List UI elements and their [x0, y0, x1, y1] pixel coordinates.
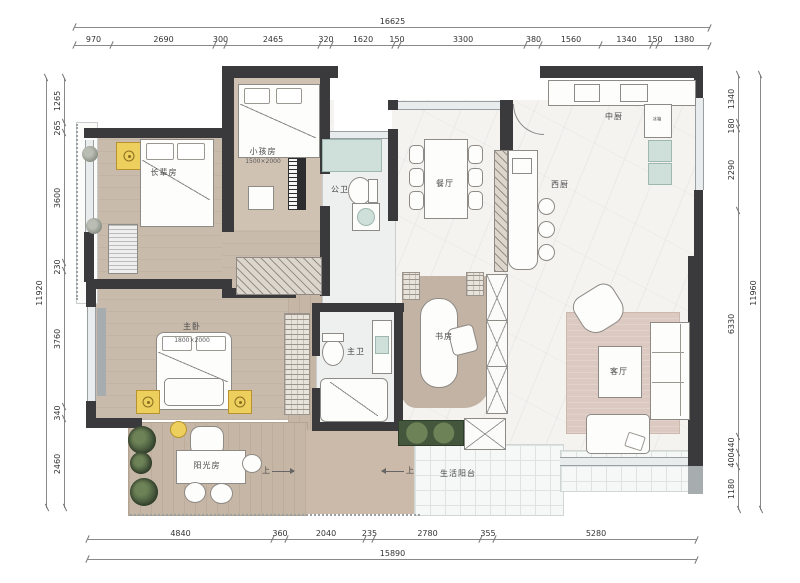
lamp-icon — [124, 151, 135, 162]
island-sink — [512, 158, 532, 174]
dim-text: 11920 — [36, 280, 44, 305]
dim-top-total: 16625 — [75, 16, 710, 28]
dim-text: 2040 — [316, 530, 336, 538]
service-balcony-floor-left — [414, 444, 564, 516]
island-stool-1 — [538, 198, 555, 215]
label-master-bed-size: 1800×2000 — [174, 338, 210, 344]
master-nightstand-right — [228, 390, 252, 414]
dim-bottom-segments: 4840 360 2040 235 2780 355 5280 — [88, 528, 697, 540]
wall-elder-left-lower — [84, 232, 94, 282]
dim-text: 4840 — [170, 530, 190, 538]
kids-wardrobe — [236, 257, 322, 295]
lamp-icon — [235, 397, 246, 408]
sunroom-plant-1 — [128, 426, 156, 454]
bathtub-line — [330, 382, 378, 416]
wall-balcony-right — [688, 466, 703, 494]
elder-pillow-right — [177, 143, 205, 160]
label-living: 客厅 — [610, 368, 628, 376]
dim-top-segments: 970 2690 300 2465 320 1620 150 3300 380 … — [75, 34, 710, 46]
elder-pillow-left — [146, 143, 174, 160]
sunroom-stool-yellow — [170, 421, 187, 438]
sunroom-plant-3 — [130, 478, 158, 506]
left-balcony-railing — [76, 124, 78, 300]
dim-text: 15890 — [380, 550, 405, 558]
wall-kids-top — [222, 66, 338, 78]
sunroom-plant-2 — [130, 452, 152, 474]
dim-text: 16625 — [380, 18, 405, 26]
kids-piano — [288, 158, 306, 210]
island-stool-2 — [538, 221, 555, 238]
label-study: 书房 — [435, 333, 453, 341]
sunroom-side-table — [242, 454, 262, 473]
study-bookcase-3 — [486, 366, 508, 414]
dim-right-segments: 1340 180 2290 6330 440 400 1180 — [726, 75, 739, 510]
dining-chair-r2 — [468, 168, 483, 187]
dim-text: 1340 — [728, 89, 736, 109]
study-cabinet-top-left — [402, 272, 420, 300]
wall-master-bath-left-upper — [312, 312, 320, 356]
up-annotation-right: 上 — [382, 467, 414, 475]
island-stool-3 — [538, 244, 555, 261]
up-arrow-right-icon — [272, 471, 294, 472]
wall-kitchen-top — [540, 66, 702, 78]
dim-text: 1340 — [616, 36, 636, 44]
dining-chair-r3 — [468, 191, 483, 210]
wall-living-right — [688, 256, 703, 466]
sofa-back-line — [680, 324, 681, 416]
floor-plan-canvas: 长辈房 小孩房 1500×2000 公卫 餐厅 中厨 西厨 冰箱 主卧 1800… — [0, 0, 800, 583]
window-living-bottom — [560, 457, 688, 466]
up-arrow-left-icon — [382, 471, 404, 472]
kitchen-stove — [574, 84, 600, 102]
study-cabinet-top-right — [466, 272, 484, 296]
dim-text: 3760 — [54, 329, 62, 349]
dining-chair-l2 — [409, 168, 424, 187]
up-annotation-left: 上 — [262, 467, 294, 475]
living-sofa — [650, 322, 690, 420]
kids-pillow-left — [244, 88, 270, 104]
dim-text: 11960 — [750, 280, 758, 305]
balcony-plant-small-1 — [82, 146, 98, 162]
wall-elder-top — [84, 128, 232, 138]
dim-text: 3300 — [453, 36, 473, 44]
guest-toilet-tank — [368, 179, 378, 203]
up-text-left: 上 — [262, 467, 270, 475]
dim-text: 2465 — [263, 36, 283, 44]
label-dining: 餐厅 — [436, 180, 454, 188]
study-bookcase-1 — [486, 274, 508, 322]
label-chinese-kitchen: 中厨 — [605, 113, 623, 121]
dim-text: 1560 — [561, 36, 581, 44]
dim-text: 1380 — [674, 36, 694, 44]
window-master-left — [87, 307, 96, 401]
dim-left-segments: 1265 265 3600 230 3760 340 2460 — [52, 78, 65, 508]
balcony-fixture — [464, 418, 506, 450]
master-basin — [375, 336, 389, 354]
dim-text: 970 — [86, 36, 101, 44]
kids-pillow-right — [276, 88, 302, 104]
dining-chair-l1 — [409, 145, 424, 164]
sunroom-railing — [130, 514, 420, 516]
master-nightstand-left — [136, 390, 160, 414]
sunroom-chair-3 — [210, 483, 233, 504]
label-master-bath: 主卫 — [347, 348, 365, 356]
sunroom-chair-2 — [184, 482, 206, 503]
dim-text: 1620 — [353, 36, 373, 44]
wall-master-bath-right — [394, 312, 403, 428]
dim-text: 2460 — [54, 453, 62, 473]
wall-master-bath-top — [312, 303, 404, 312]
label-master-bedroom: 主卧 — [183, 323, 201, 331]
label-kids-bed-size: 1500×2000 — [245, 159, 281, 165]
dim-text: 5280 — [586, 530, 606, 538]
dim-text: 1180 — [728, 478, 736, 498]
dim-left-total: 11920 — [34, 78, 47, 508]
master-wardrobe — [284, 313, 310, 415]
elder-nightstand-lamp — [116, 142, 142, 170]
wall-master-bottom — [86, 418, 142, 428]
west-kitchen-wall-strip — [494, 150, 508, 272]
master-tv-cabinet — [97, 308, 106, 396]
dim-text: 3600 — [54, 188, 62, 208]
dim-text: 2290 — [728, 160, 736, 180]
label-kids-room: 小孩房 — [250, 148, 277, 156]
label-sunroom: 阳光房 — [194, 462, 221, 470]
wall-elder-master-divider — [90, 279, 232, 289]
dim-text: 355 — [480, 530, 495, 538]
dim-text: 2690 — [153, 36, 173, 44]
guest-washer-drum — [357, 208, 375, 226]
dim-right-total: 11960 — [748, 75, 761, 510]
label-elder-room: 长辈房 — [151, 169, 178, 177]
wall-master-bath-bottom — [312, 422, 404, 431]
dim-text: 440 — [728, 437, 736, 452]
void-above-bath — [334, 98, 392, 132]
guest-shower — [322, 139, 382, 172]
elder-bench — [108, 224, 138, 274]
balcony-plant-small-2 — [86, 218, 102, 234]
kitchen-appliance-2 — [648, 163, 672, 185]
dim-text: 2780 — [417, 530, 437, 538]
dim-text: 6330 — [728, 314, 736, 334]
kids-bed-fold-line — [240, 104, 316, 138]
label-fridge: 冰箱 — [653, 118, 662, 122]
elder-bed-fold-line — [142, 160, 210, 200]
label-service-balcony: 生活阳台 — [440, 470, 476, 478]
window-guest-bath — [330, 131, 392, 139]
master-toilet — [322, 339, 344, 366]
dining-chair-r1 — [468, 145, 483, 164]
label-western-kitchen: 西厨 — [551, 181, 569, 189]
kitchen-sink — [620, 84, 648, 102]
dim-text: 400 — [728, 452, 736, 467]
planter-box — [398, 420, 464, 446]
window-kitchen-right — [695, 98, 704, 190]
label-guest-bath: 公卫 — [331, 186, 349, 194]
up-text-right: 上 — [406, 467, 414, 475]
dining-chair-l3 — [409, 191, 424, 210]
dim-text: 380 — [526, 36, 541, 44]
master-bench — [164, 378, 224, 406]
window-dining-top — [396, 101, 504, 110]
kitchen-appliance-1 — [648, 140, 672, 162]
lamp-icon — [143, 397, 154, 408]
study-bookcase-2 — [486, 320, 508, 368]
dim-bottom-total: 15890 — [88, 548, 697, 560]
kids-desk — [248, 186, 274, 210]
master-toilet-tank — [322, 333, 344, 342]
dim-text: 1265 — [54, 90, 62, 110]
wall-dining-top-cap-left — [388, 100, 398, 110]
wall-elder-kids-divider — [222, 128, 234, 232]
wall-guest-bath-right — [388, 129, 398, 221]
wall-right-mid — [694, 190, 703, 258]
dim-text: 360 — [272, 530, 287, 538]
